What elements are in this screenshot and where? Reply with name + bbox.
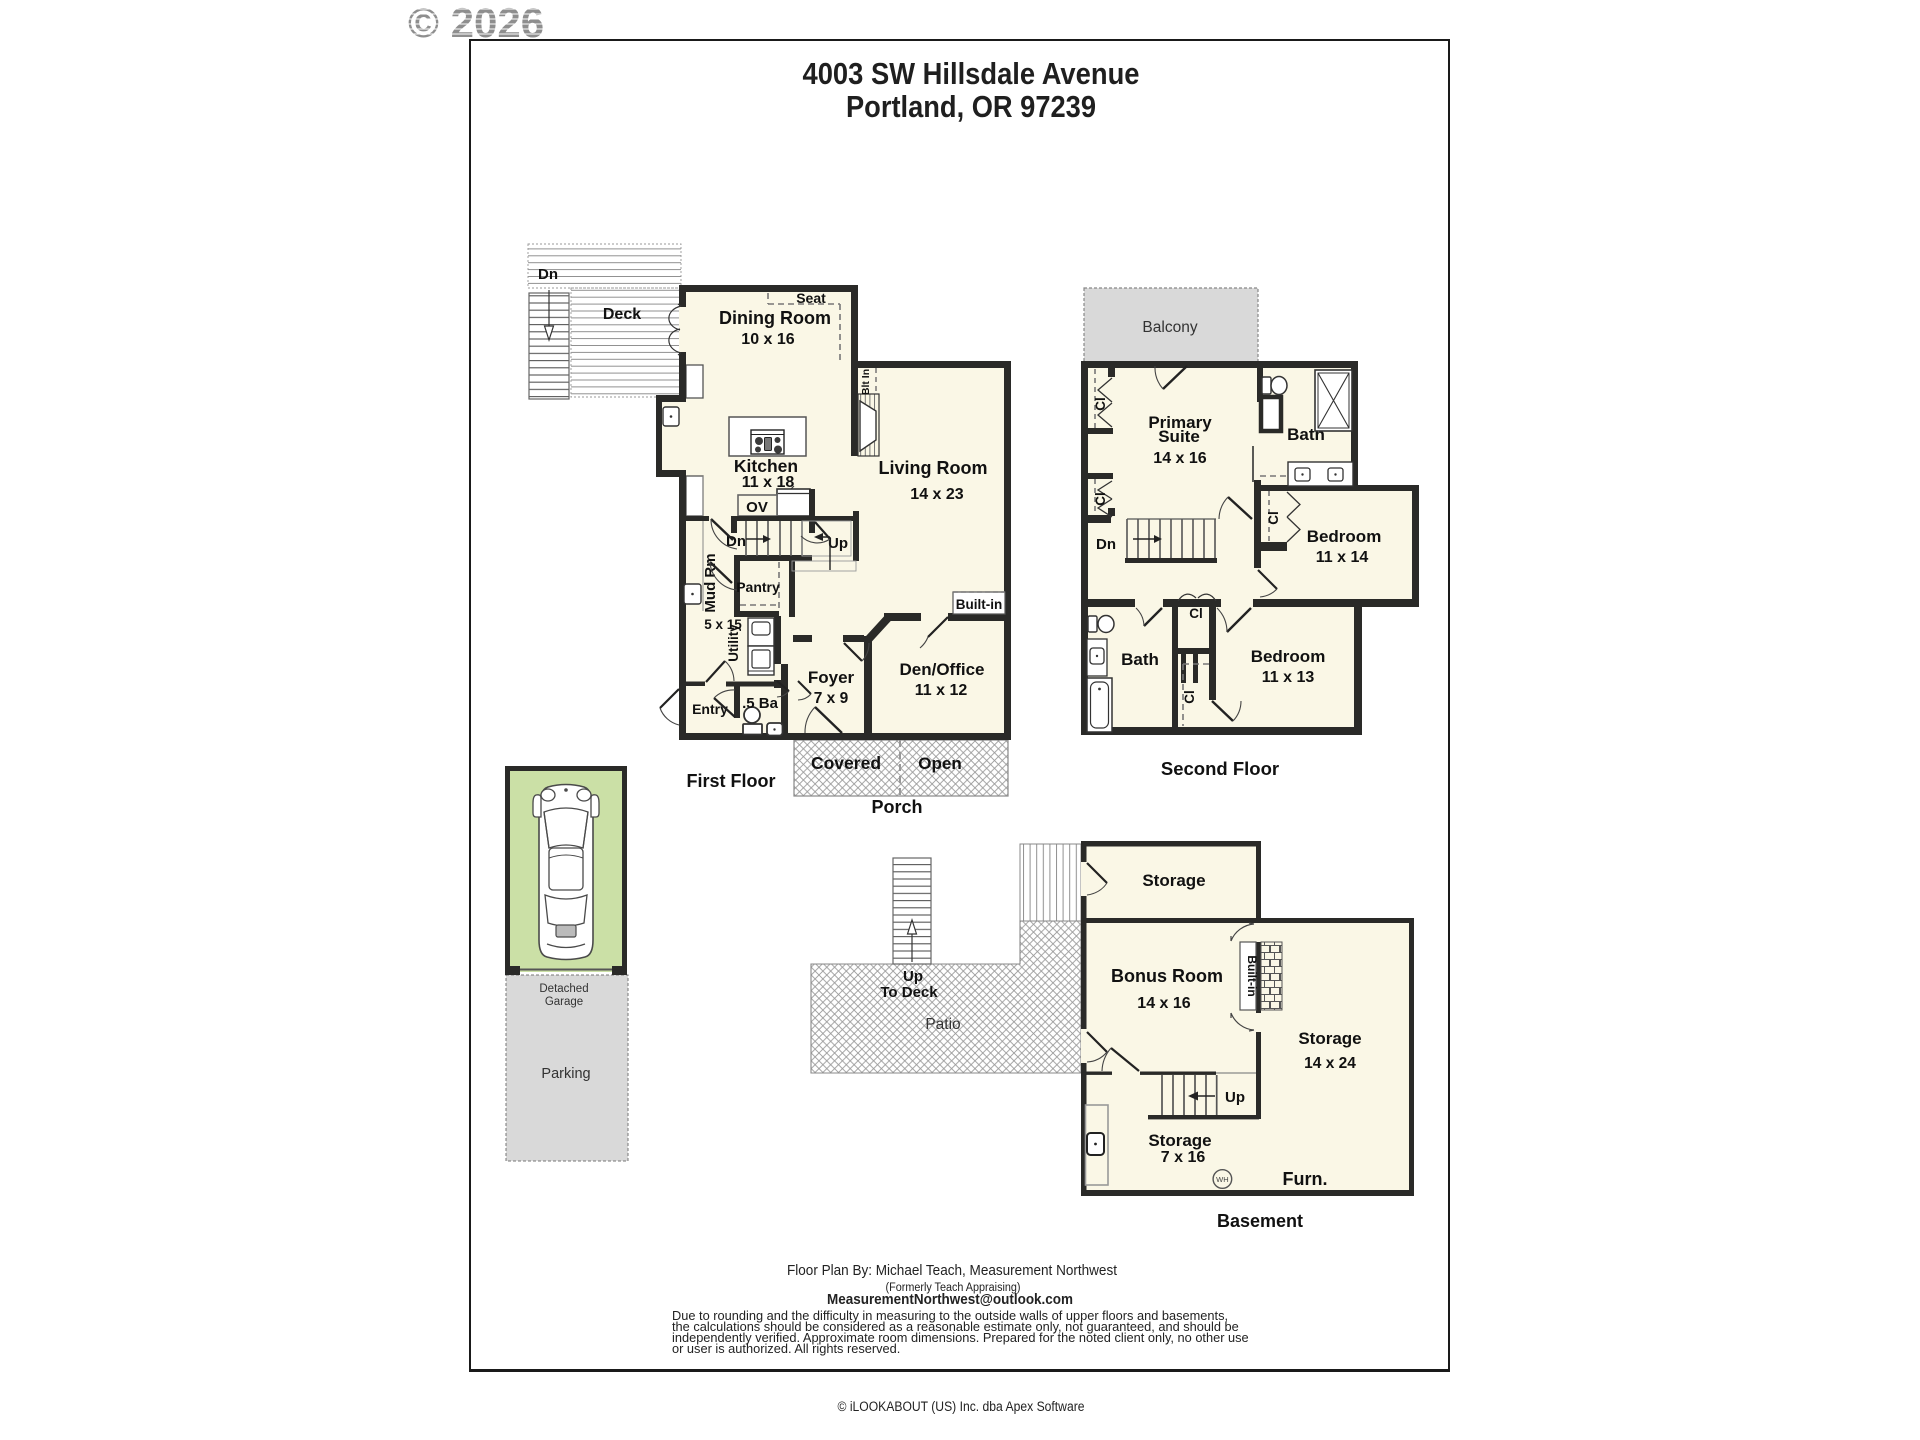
svg-text:Built-in: Built-in [1245, 955, 1259, 996]
svg-text:Seat: Seat [796, 290, 826, 306]
svg-text:or user is authorized. All rig: or user is authorized. All rights reserv… [672, 1341, 900, 1356]
svg-text:Suite: Suite [1158, 427, 1200, 446]
svg-text:Storage: Storage [1298, 1029, 1361, 1048]
svg-text:First Floor: First Floor [687, 771, 776, 791]
svg-text:Second Floor: Second Floor [1161, 758, 1279, 779]
svg-text:Parking: Parking [541, 1066, 590, 1082]
svg-text:14 x 23: 14 x 23 [910, 486, 963, 503]
svg-text:Garage: Garage [545, 996, 583, 1008]
svg-text:Cl: Cl [1093, 397, 1108, 411]
svg-text:OV: OV [746, 499, 768, 516]
svg-text:Bedroom: Bedroom [1251, 647, 1326, 666]
svg-text:Dining Room: Dining Room [719, 308, 831, 328]
svg-text:14 x 24: 14 x 24 [1304, 1055, 1356, 1072]
svg-text:© 2026: © 2026 [408, 0, 544, 46]
svg-text:WH: WH [1216, 1175, 1229, 1184]
svg-text:Balcony: Balcony [1142, 319, 1197, 336]
svg-text:Basement: Basement [1217, 1211, 1303, 1231]
svg-text:11 x 18: 11 x 18 [742, 474, 795, 491]
svg-text:10 x 16: 10 x 16 [741, 331, 794, 348]
svg-text:Cl: Cl [1266, 511, 1281, 525]
svg-text:Covered: Covered [811, 753, 881, 773]
svg-text:Dn: Dn [1096, 536, 1116, 553]
svg-text:Detached: Detached [539, 983, 588, 995]
svg-text:Floor Plan By: Michael Teach,: Floor Plan By: Michael Teach, Measuremen… [787, 1263, 1117, 1279]
svg-text:Cl: Cl [1182, 690, 1197, 704]
svg-text:7 x 16: 7 x 16 [1161, 1149, 1206, 1166]
svg-text:Up: Up [828, 535, 848, 552]
svg-text:Storage: Storage [1148, 1131, 1211, 1150]
svg-text:Dn: Dn [538, 266, 558, 283]
svg-text:Den/Office: Den/Office [899, 660, 984, 679]
svg-text:Foyer: Foyer [808, 668, 855, 687]
svg-text:Storage: Storage [1142, 871, 1205, 890]
svg-text:7 x 9: 7 x 9 [814, 690, 849, 707]
svg-text:Pantry: Pantry [736, 579, 780, 595]
svg-text:11 x 14: 11 x 14 [1316, 549, 1369, 566]
svg-text:Blt In: Blt In [860, 369, 872, 395]
svg-text:Up: Up [903, 968, 923, 985]
svg-text:Bath: Bath [1121, 650, 1159, 669]
svg-text:Deck: Deck [603, 306, 641, 323]
svg-text:4003 SW Hillsdale Avenue: 4003 SW Hillsdale Avenue [803, 56, 1140, 91]
svg-text:Kitchen: Kitchen [734, 456, 798, 476]
svg-text:.5 Ba: .5 Ba [742, 695, 779, 712]
svg-text:14 x 16: 14 x 16 [1153, 450, 1206, 467]
svg-text:To Deck: To Deck [880, 984, 938, 1001]
svg-text:© iLOOKABOUT (US) Inc. dba Ape: © iLOOKABOUT (US) Inc. dba Apex Software [838, 1399, 1085, 1414]
svg-text:MeasurementNorthwest@outlook.c: MeasurementNorthwest@outlook.com [827, 1291, 1073, 1308]
svg-text:Entry: Entry [692, 701, 728, 717]
svg-text:Furn.: Furn. [1283, 1169, 1328, 1189]
svg-text:11 x 12: 11 x 12 [915, 682, 968, 699]
svg-text:Utility: Utility [726, 624, 741, 662]
svg-text:Porch: Porch [871, 797, 922, 817]
svg-text:Bedroom: Bedroom [1307, 527, 1382, 546]
svg-text:14 x 16: 14 x 16 [1137, 995, 1190, 1012]
svg-text:Living Room: Living Room [879, 458, 988, 478]
svg-text:Built-in: Built-in [956, 597, 1003, 612]
svg-text:Patio: Patio [925, 1016, 960, 1033]
svg-text:11 x 13: 11 x 13 [1262, 669, 1315, 686]
svg-text:Up: Up [1225, 1089, 1245, 1106]
svg-text:Bonus Room: Bonus Room [1111, 966, 1223, 986]
svg-text:Open: Open [918, 754, 961, 773]
svg-text:Portland, OR 97239: Portland, OR 97239 [846, 89, 1096, 124]
svg-text:Cl: Cl [1093, 492, 1108, 506]
svg-text:Cl: Cl [1189, 606, 1203, 621]
